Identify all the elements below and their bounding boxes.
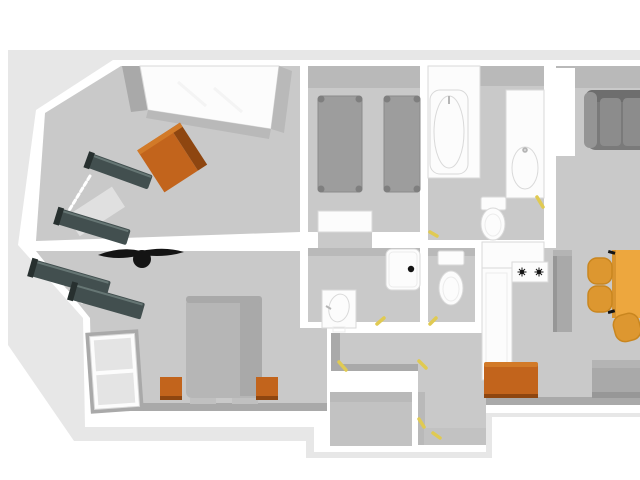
sofa-cushion-1 [600, 98, 621, 146]
single-bed-2-mattress [384, 96, 420, 192]
chest-body [484, 362, 538, 398]
sofa-arm [584, 92, 597, 148]
stove-two-burners[interactable] [512, 262, 548, 282]
window-pane-top [94, 338, 133, 372]
single-bed-1[interactable] [318, 96, 363, 193]
bathtub-basin [434, 96, 464, 168]
bedpost [356, 96, 363, 103]
bathtub[interactable] [430, 90, 468, 174]
chest-top [484, 362, 538, 367]
twin-bedroom-wall-shadow [308, 66, 420, 88]
single-bed-2[interactable] [384, 96, 421, 193]
bedpost [384, 96, 391, 103]
fridge-top [553, 250, 572, 256]
table-top [612, 250, 640, 318]
bedpost [356, 186, 363, 193]
window-pane-bottom [96, 373, 135, 406]
chair-1[interactable] [588, 258, 612, 284]
sofa[interactable] [584, 90, 640, 150]
bedpost [318, 186, 325, 193]
dining-table[interactable] [608, 250, 640, 318]
toilet-bathroom[interactable] [481, 197, 506, 240]
chest-base [484, 394, 538, 398]
table-edge [612, 250, 616, 318]
shower-tray[interactable] [386, 249, 420, 290]
nightstand-left-base [160, 396, 182, 400]
fridge-side [553, 250, 557, 332]
bench-top [592, 360, 640, 368]
entry-threshold [424, 428, 486, 445]
fridge[interactable] [553, 250, 572, 332]
nightstand-right[interactable] [256, 377, 278, 400]
double-bed-foot-right [232, 398, 258, 404]
single-bed-1-mattress [318, 96, 362, 192]
bedpost [318, 96, 325, 103]
nightstand-right-base [256, 396, 278, 400]
vanity-sink[interactable] [506, 90, 544, 198]
bathroom-wall-shadow [480, 66, 544, 86]
open-door-leaf[interactable] [318, 211, 372, 232]
living-door-recess [553, 68, 575, 156]
chest-orange[interactable] [484, 362, 538, 398]
toilet-wc[interactable] [438, 251, 464, 305]
bedpost [384, 186, 391, 193]
double-bed-headboard [186, 296, 262, 303]
storage-wall-shadow [330, 392, 412, 402]
pedestal-sink[interactable] [322, 290, 356, 332]
floorplan-render [0, 0, 640, 480]
shower-drain [408, 266, 414, 272]
shower-tray-base [386, 249, 420, 290]
bench-gray[interactable] [592, 360, 640, 398]
floorplan-canvas [0, 0, 640, 480]
nightstand-left[interactable] [160, 377, 182, 400]
chair-2[interactable] [588, 286, 612, 312]
bedpost [414, 96, 421, 103]
double-bed-foot-left [190, 398, 216, 404]
bench-front [592, 392, 640, 398]
sofa-cushion-2 [623, 98, 640, 146]
fan-hub [133, 250, 151, 268]
window-door[interactable] [85, 329, 144, 413]
bedpost [414, 186, 421, 193]
toilet-tank [438, 251, 464, 265]
living-bottom-wall-face [486, 397, 640, 405]
vanity-basin [512, 147, 538, 189]
double-bed[interactable] [186, 296, 262, 404]
twin-bedroom-door-opening [318, 232, 372, 248]
